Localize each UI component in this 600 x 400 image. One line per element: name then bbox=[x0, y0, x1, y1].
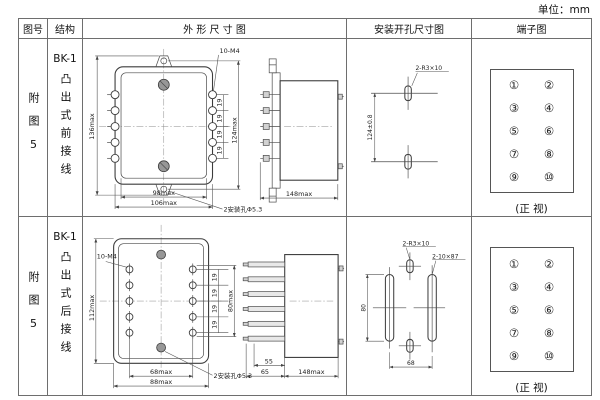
row2-install-dim-width: 68 bbox=[407, 360, 415, 367]
row2-terminal-7: ⑦ bbox=[509, 326, 519, 340]
row1-dim-thread: 10-M4 bbox=[219, 47, 239, 55]
row1-side-studs bbox=[260, 92, 280, 162]
row2-front-view bbox=[100, 225, 223, 373]
row1-terminal-10: ⑩ bbox=[544, 170, 554, 184]
row2-install-cutout-label: 2-10×87 bbox=[432, 253, 458, 260]
row2-dim-stud-outer: 65 bbox=[261, 368, 269, 376]
row1-install-slot-label: 2-R3×10 bbox=[415, 65, 442, 72]
row1-terminal-2: ② bbox=[544, 78, 554, 92]
row2-dim-stud-inner: 55 bbox=[265, 357, 273, 365]
row2-outline-drawing-cell: 10-M4 112max 19 19 19 19 bbox=[83, 217, 347, 395]
row2-left-terminals bbox=[126, 263, 133, 338]
row2-dimensions: 10-M4 112max 19 19 19 19 bbox=[88, 239, 252, 388]
row2-right-terminals bbox=[189, 263, 196, 338]
row1-install-drawing: 124±0.8 2-R3×10 bbox=[347, 39, 471, 216]
header-structure: 结构 bbox=[48, 19, 83, 39]
row1-model: BK-1 bbox=[53, 53, 76, 65]
row2-structure-cell: BK-1 凸出式后接线 bbox=[48, 217, 83, 395]
row2-terminal-6: ⑥ bbox=[544, 303, 554, 317]
row1-structure-cell: BK-1 凸出式前接线 bbox=[48, 39, 83, 217]
row1-outline-drawing-cell: 136max 19 19 19 19 124max 10-M bbox=[83, 39, 347, 217]
row2-dim-depth: 148max bbox=[298, 368, 324, 376]
row1-dim-height: 136max bbox=[88, 113, 96, 140]
row2-install-dim-height: 80 bbox=[361, 304, 368, 312]
row2-dim-height: 112max bbox=[88, 295, 96, 321]
row2-fig-no-cell: 附图5 bbox=[19, 217, 48, 395]
row2-terminal-4: ④ bbox=[544, 280, 554, 294]
row1-dim-width-outer: 106max bbox=[151, 199, 178, 207]
header-fig-no: 图号 bbox=[19, 19, 48, 39]
row1-dim-depth: 148max bbox=[286, 190, 313, 198]
datasheet-page: 单位：mm 图号 结构 外 形 尺 寸 图 安装开孔尺寸图 端子图 附图5 BK… bbox=[0, 0, 600, 400]
row1-structure-desc: 凸出式前接线 bbox=[57, 73, 73, 181]
row2-dim-pitch-2: 19 bbox=[210, 289, 218, 297]
row2-dim-pitch-4: 19 bbox=[210, 321, 218, 329]
row2-terminal-caption: (正 视) bbox=[515, 380, 548, 395]
row2-side-studs bbox=[243, 262, 285, 341]
row1-terminal-1: ① bbox=[509, 78, 519, 92]
row2-terminal-box: ① ② ③ ④ ⑤ ⑥ ⑦ ⑧ ⑨ ⑩ bbox=[490, 247, 574, 372]
row2-install-drawing: 80 68 2-R3×10 2-10×87 bbox=[347, 217, 471, 395]
spec-table: 图号 结构 外 形 尺 寸 图 安装开孔尺寸图 端子图 附图5 BK-1 凸出式… bbox=[18, 18, 592, 396]
header-install: 安装开孔尺寸图 bbox=[347, 19, 472, 39]
row1-terminal-4: ④ bbox=[544, 101, 554, 115]
row1-terminal-cell: ① ② ③ ④ ⑤ ⑥ ⑦ ⑧ ⑨ ⑩ (正 视) bbox=[472, 39, 591, 217]
row1-side-view: 148max bbox=[260, 59, 344, 202]
row2-side-view: 55 65 148max bbox=[243, 255, 344, 379]
row1-terminal-5: ⑤ bbox=[509, 124, 519, 138]
row2-terminal-10: ⑩ bbox=[544, 349, 554, 363]
row1-fig-no-cell: 附图5 bbox=[19, 39, 48, 217]
row2-terminal-5: ⑤ bbox=[509, 303, 519, 317]
row2-mounting-slots bbox=[373, 252, 445, 359]
row1-terminal-3: ③ bbox=[509, 101, 519, 115]
row2-dim-span: 80max bbox=[226, 290, 234, 312]
header-terminal: 端子图 bbox=[472, 19, 591, 39]
row2-fig-no: 附图5 bbox=[25, 271, 41, 342]
row1-install-dim-span: 124±0.8 bbox=[367, 114, 374, 140]
row1-terminal-box: ① ② ③ ④ ⑤ ⑥ ⑦ ⑧ ⑨ ⑩ bbox=[490, 69, 574, 193]
row1-mounting-slots bbox=[371, 77, 438, 179]
row2-model: BK-1 bbox=[53, 231, 76, 243]
row2-structure-desc: 凸出式后接线 bbox=[57, 251, 73, 359]
row2-install-slot-label: 2-R3×10 bbox=[403, 240, 430, 247]
row1-terminal-9: ⑨ bbox=[509, 170, 519, 184]
row1-terminal-8: ⑧ bbox=[544, 147, 554, 161]
row1-install-drawing-cell: 124±0.8 2-R3×10 bbox=[347, 39, 472, 217]
row2-terminal-8: ⑧ bbox=[544, 326, 554, 340]
row1-dim-pitch-4: 19 bbox=[215, 146, 223, 154]
row1-dim-pitch-3: 19 bbox=[215, 130, 223, 138]
row1-terminal-7: ⑦ bbox=[509, 147, 519, 161]
row1-dim-span: 124max bbox=[230, 117, 238, 144]
row1-outline-drawing: 136max 19 19 19 19 124max 10-M bbox=[83, 39, 346, 216]
row2-terminal-2: ② bbox=[544, 257, 554, 271]
row1-front-view bbox=[99, 49, 232, 204]
row2-dim-thread: 10-M4 bbox=[97, 253, 117, 261]
row1-dim-width-inner: 98max bbox=[153, 189, 175, 197]
row1-terminal-caption: (正 视) bbox=[515, 201, 548, 216]
row2-install-drawing-cell: 80 68 2-R3×10 2-10×87 bbox=[347, 217, 472, 395]
row2-terminal-9: ⑨ bbox=[509, 349, 519, 363]
row2-dim-width-inner: 68max bbox=[150, 368, 172, 376]
row2-outline-drawing: 10-M4 112max 19 19 19 19 bbox=[83, 217, 346, 395]
row2-dim-pitch-1: 19 bbox=[210, 273, 218, 281]
row2-dim-pitch-3: 19 bbox=[210, 305, 218, 313]
row1-fig-no: 附图5 bbox=[25, 92, 41, 163]
header-outline: 外 形 尺 寸 图 bbox=[83, 19, 347, 39]
row1-dim-pitch-1: 19 bbox=[215, 99, 223, 107]
row1-dim-mount-hole: 2安装孔Φ5.3 bbox=[223, 205, 262, 214]
row2-terminal-cell: ① ② ③ ④ ⑤ ⑥ ⑦ ⑧ ⑨ ⑩ (正 视) bbox=[472, 217, 591, 395]
row2-dim-width-outer: 88max bbox=[150, 378, 172, 386]
row1-dim-pitch-2: 19 bbox=[215, 114, 223, 122]
row1-terminal-6: ⑥ bbox=[544, 124, 554, 138]
unit-label: 单位：mm bbox=[538, 2, 590, 17]
row1-left-terminals bbox=[107, 91, 119, 163]
row2-terminal-3: ③ bbox=[509, 280, 519, 294]
row2-terminal-1: ① bbox=[509, 257, 519, 271]
